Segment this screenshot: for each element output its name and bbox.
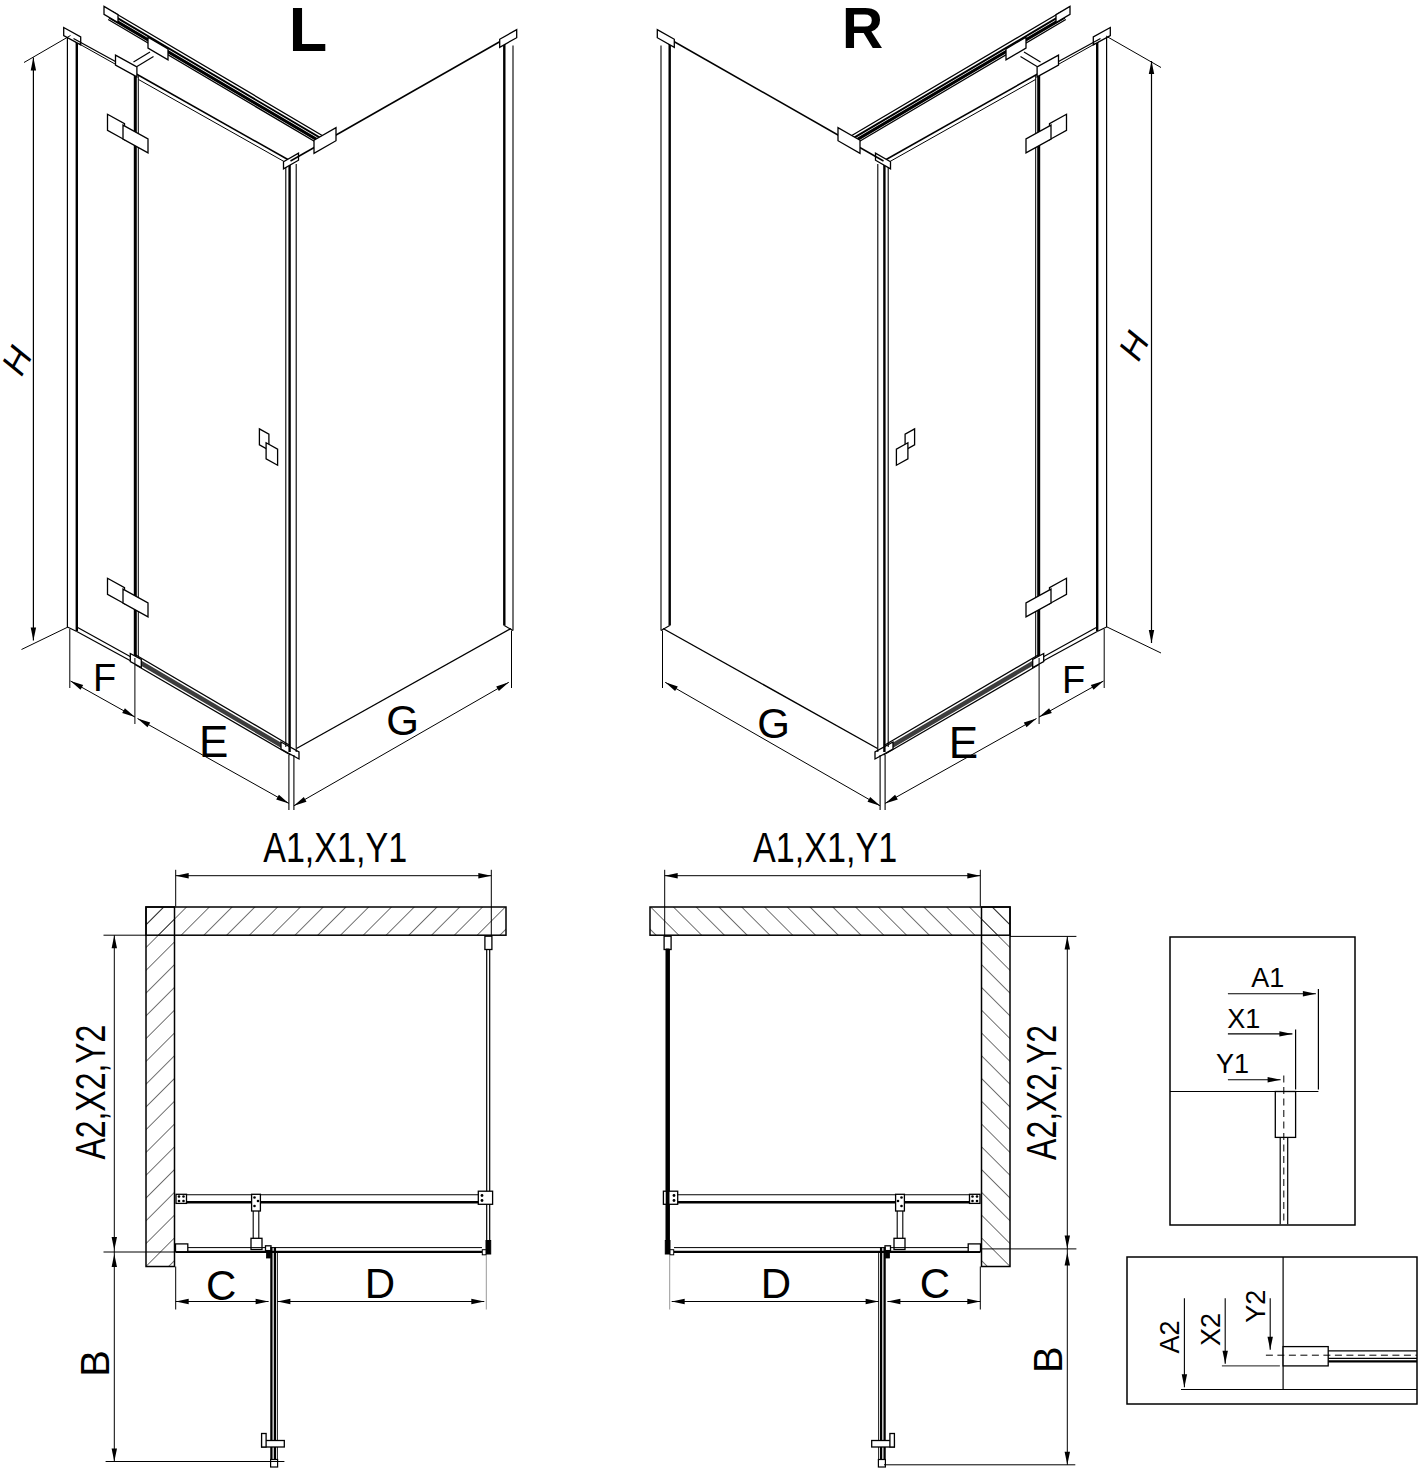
svg-text:Y2: Y2 (1241, 1290, 1271, 1323)
svg-text:A1: A1 (1251, 963, 1284, 993)
svg-text:G: G (757, 700, 790, 747)
svg-text:A1,X1,Y1: A1,X1,Y1 (263, 824, 407, 871)
svg-text:A2,X2,Y2: A2,X2,Y2 (67, 1025, 114, 1160)
svg-text:B: B (1027, 1346, 1071, 1373)
svg-text:D: D (365, 1260, 395, 1307)
svg-text:Y1: Y1 (1216, 1049, 1249, 1079)
svg-text:F: F (93, 657, 116, 699)
svg-text:F: F (1062, 659, 1085, 701)
svg-text:E: E (199, 717, 228, 766)
svg-text:B: B (73, 1350, 117, 1377)
svg-text:C: C (206, 1262, 236, 1309)
svg-text:A2,X2,Y2: A2,X2,Y2 (1018, 1025, 1065, 1160)
svg-text:G: G (386, 697, 419, 744)
svg-text:A2: A2 (1155, 1320, 1185, 1353)
svg-text:E: E (949, 718, 978, 767)
svg-text:A1,X1,Y1: A1,X1,Y1 (753, 824, 897, 871)
svg-text:D: D (761, 1260, 791, 1307)
svg-text:X1: X1 (1227, 1004, 1260, 1034)
svg-text:L: L (289, 0, 327, 64)
svg-text:R: R (842, 0, 883, 60)
svg-text:X2: X2 (1196, 1313, 1226, 1346)
svg-text:C: C (920, 1260, 950, 1307)
